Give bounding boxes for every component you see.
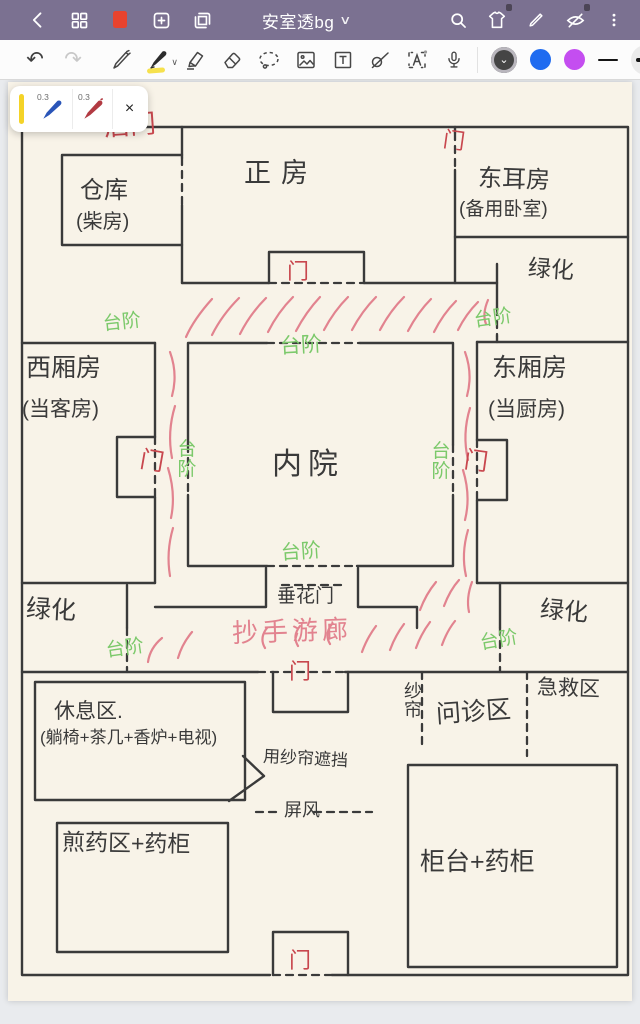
insert-image-tool[interactable] [293, 46, 319, 74]
undo-button[interactable]: ↶ [22, 46, 48, 74]
toolbar-divider [477, 47, 478, 73]
pen-size-label: 0.3 [37, 92, 49, 102]
label-decoction-area: 煎药区+药柜 [62, 829, 191, 858]
tools-group: ∨ [86, 46, 467, 74]
microphone-tool[interactable] [441, 46, 467, 74]
drawing-toolbar: ↶ ↷ ∨ [0, 40, 640, 80]
redo-button[interactable]: ↷ [60, 46, 86, 74]
more-menu-button[interactable] [602, 8, 626, 32]
tshirt-template-button[interactable] [485, 8, 509, 32]
app-bar-left-group [0, 8, 214, 32]
history-group: ↶ ↷ [0, 46, 86, 74]
label-festoon-gate: 垂花门 [277, 586, 334, 608]
label-east-ear-room-sub: (备用卧室) [459, 199, 548, 221]
eraser-tool[interactable] [219, 46, 245, 74]
app-bar: 安室透bg ∨ [0, 0, 640, 40]
handwriting-recognition-tool[interactable] [404, 46, 430, 74]
ballpoint-pen-tool[interactable] [108, 46, 134, 74]
thumbnails-grid-button[interactable] [67, 8, 91, 32]
label-steps-west: 台阶 [176, 440, 198, 480]
pen-preset-red[interactable]: 0.3 [72, 89, 112, 129]
label-consultation-area: 问诊区 [435, 695, 512, 729]
add-page-button[interactable] [149, 8, 173, 32]
tool-options-chevron-icon: ∨ [171, 57, 178, 68]
label-east-wing: 东厢房 [492, 354, 567, 383]
label-greenery-bottom-right: 绿化 [539, 596, 589, 628]
title-chevron-down-icon: ∨ [340, 13, 352, 27]
color-swatch-black-selected[interactable]: ⌄ [491, 47, 517, 73]
label-steps-south-center: 台阶 [280, 540, 322, 566]
label-storehouse-sub: (柴房) [76, 211, 129, 234]
text-tool[interactable] [330, 46, 356, 74]
label-door-west: 门 [138, 446, 166, 477]
pen-mode-button[interactable] [524, 8, 548, 32]
label-gauze-curtain: 纱帘 [402, 682, 424, 720]
label-steps-top-left: 台阶 [102, 310, 142, 336]
color-swatch-blue[interactable] [530, 49, 551, 70]
label-door-center: 门 [287, 259, 309, 284]
color-chevron-down-icon: ⌄ [499, 53, 508, 66]
shapes-tool[interactable] [367, 46, 393, 74]
label-west-wing: 西厢房 [26, 354, 101, 383]
label-steps-top-center: 台阶 [279, 333, 322, 359]
app-bar-right-group [446, 0, 626, 40]
label-inner-courtyard: 内院 [272, 448, 344, 483]
document-title-text: 安室透bg [262, 8, 334, 33]
crop-screenshot-button[interactable] [190, 8, 214, 32]
medium-line-icon [636, 58, 640, 62]
thin-line-icon [598, 59, 618, 61]
label-rest-area-sub: (躺椅+茶几+香炉+电视) [40, 728, 217, 748]
label-door-top-right: 门 [441, 127, 466, 155]
label-main-house: 正房 [244, 158, 318, 189]
label-door-middle: 门 [289, 659, 311, 684]
notes-app: 安室透bg ∨ [0, 0, 640, 1024]
stroke-width-medium-selected[interactable] [631, 45, 640, 75]
label-emergency-area: 急救区 [537, 676, 601, 702]
label-rest-area: 休息区. [54, 700, 123, 724]
popup-yellow-indicator [19, 94, 24, 124]
lock-badge [506, 4, 512, 11]
search-button[interactable] [446, 8, 470, 32]
color-width-group: ⌄ [477, 45, 640, 75]
label-storehouse: 仓库 [80, 177, 128, 205]
fountain-pen-tool-selected[interactable]: ∨ [145, 46, 171, 74]
color-swatch-purple[interactable] [564, 49, 585, 70]
label-greenery-bottom-left: 绿化 [25, 595, 76, 626]
label-folding-screen: 屏风 [284, 800, 320, 821]
label-counter-cabinet: 柜台+药柜 [420, 848, 535, 877]
label-east-wing-sub: (当厨房) [488, 398, 565, 422]
label-steps-east: 台阶 [430, 442, 452, 482]
label-west-wing-sub: (当客房) [22, 398, 99, 422]
popup-close-button[interactable]: × [112, 89, 146, 129]
pen-preset-blue[interactable]: 0.3 [32, 89, 72, 129]
label-door-east: 门 [462, 446, 490, 477]
label-greenery-top-right: 绿化 [527, 254, 575, 284]
current-page-red-icon[interactable] [108, 8, 132, 32]
label-east-ear-room: 东耳房 [478, 165, 551, 195]
lock-badge [584, 4, 590, 11]
pen-settings-popup: 0.3 0.3 × [10, 86, 148, 132]
back-button[interactable] [26, 8, 50, 32]
document-title[interactable]: 安室透bg ∨ [262, 0, 350, 40]
label-door-bottom: 门 [289, 948, 311, 973]
stroke-width-thin[interactable] [598, 59, 618, 61]
lasso-select-tool[interactable] [256, 46, 282, 74]
label-veranda-corridor: 抄手游廊 [232, 615, 353, 649]
pen-size-label: 0.3 [78, 92, 90, 102]
highlighter-tool[interactable] [182, 46, 208, 74]
hide-annotations-button[interactable] [563, 8, 587, 32]
